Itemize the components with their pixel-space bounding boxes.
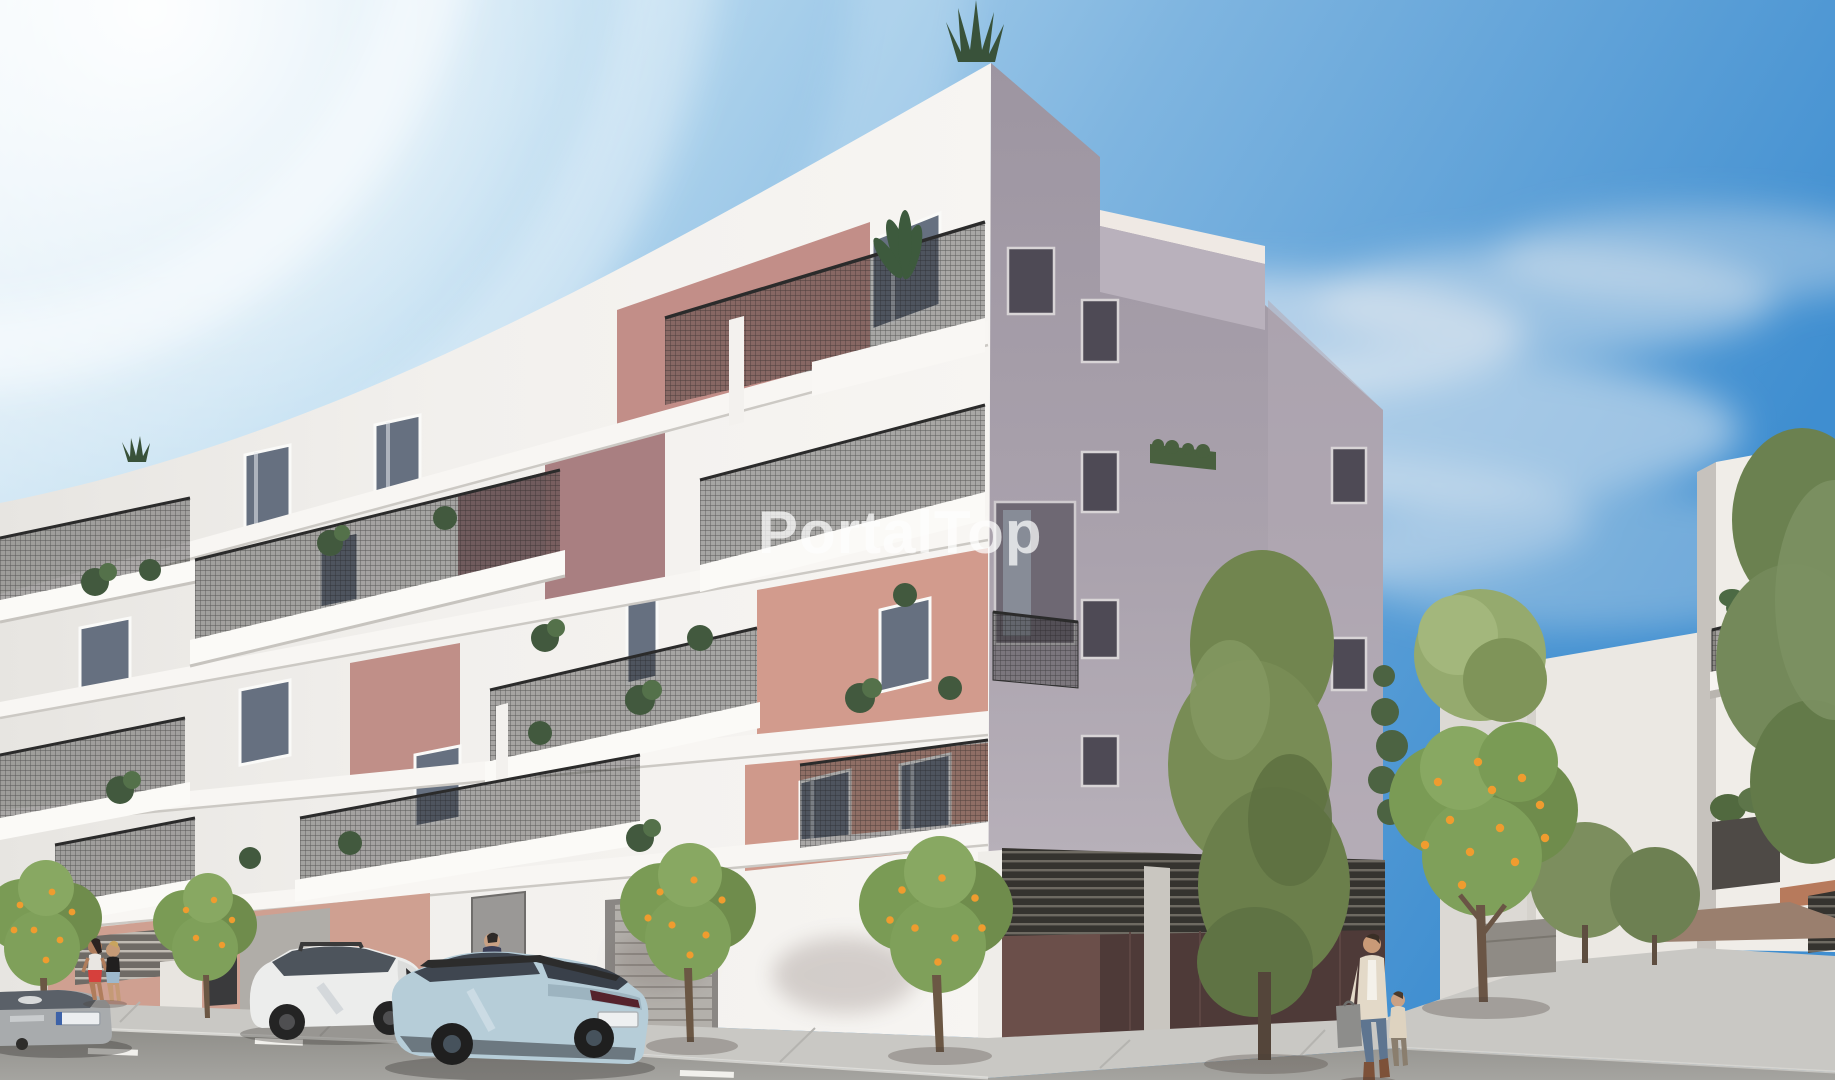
scene-render	[0, 0, 1835, 1080]
shopping-bag	[1336, 1004, 1362, 1048]
render-canvas: PortalTop	[0, 0, 1835, 1080]
side-facade-corner-balcony	[993, 502, 1078, 688]
stone-wall	[1483, 918, 1556, 978]
